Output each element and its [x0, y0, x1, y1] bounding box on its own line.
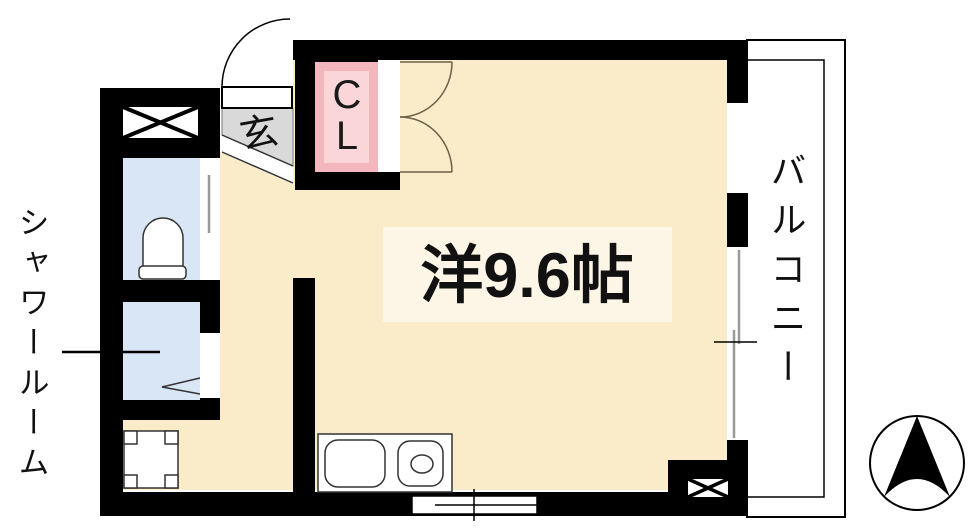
pipe-space-upper — [123, 107, 198, 138]
toilet-room — [123, 158, 220, 280]
closet-label: CL — [333, 73, 362, 158]
drain-circle — [411, 455, 433, 473]
toilet-bowl — [143, 218, 183, 267]
kitchen-partition-wall — [293, 278, 315, 492]
toilet-tank — [139, 266, 186, 279]
shower-door-opening — [200, 333, 220, 398]
floor-plan: 洋9.6帖 — [0, 0, 974, 531]
balcony-label: バルコニー — [766, 152, 807, 397]
entrance-door-leaf — [222, 87, 292, 108]
shower-room-label: シャワールーム — [14, 206, 49, 486]
washer-pan-corner — [124, 475, 137, 488]
washer-pan-corner — [165, 475, 178, 488]
main-room-label: 洋9.6帖 — [420, 241, 634, 311]
pipe-space-lower — [688, 479, 728, 497]
right-wall-mid — [727, 193, 748, 247]
kitchen-counter — [318, 434, 452, 492]
north-compass-icon — [870, 416, 964, 510]
washer-pan-corner — [165, 431, 178, 444]
right-wall-upper — [727, 40, 748, 103]
window-sliding — [727, 247, 748, 440]
entrance-label: 玄 — [237, 110, 282, 158]
closet-door-panel — [378, 60, 400, 172]
sink-basin — [325, 440, 385, 487]
washer-pan — [124, 431, 178, 488]
window-upper — [727, 103, 748, 193]
washer-pan-corner — [124, 431, 137, 444]
